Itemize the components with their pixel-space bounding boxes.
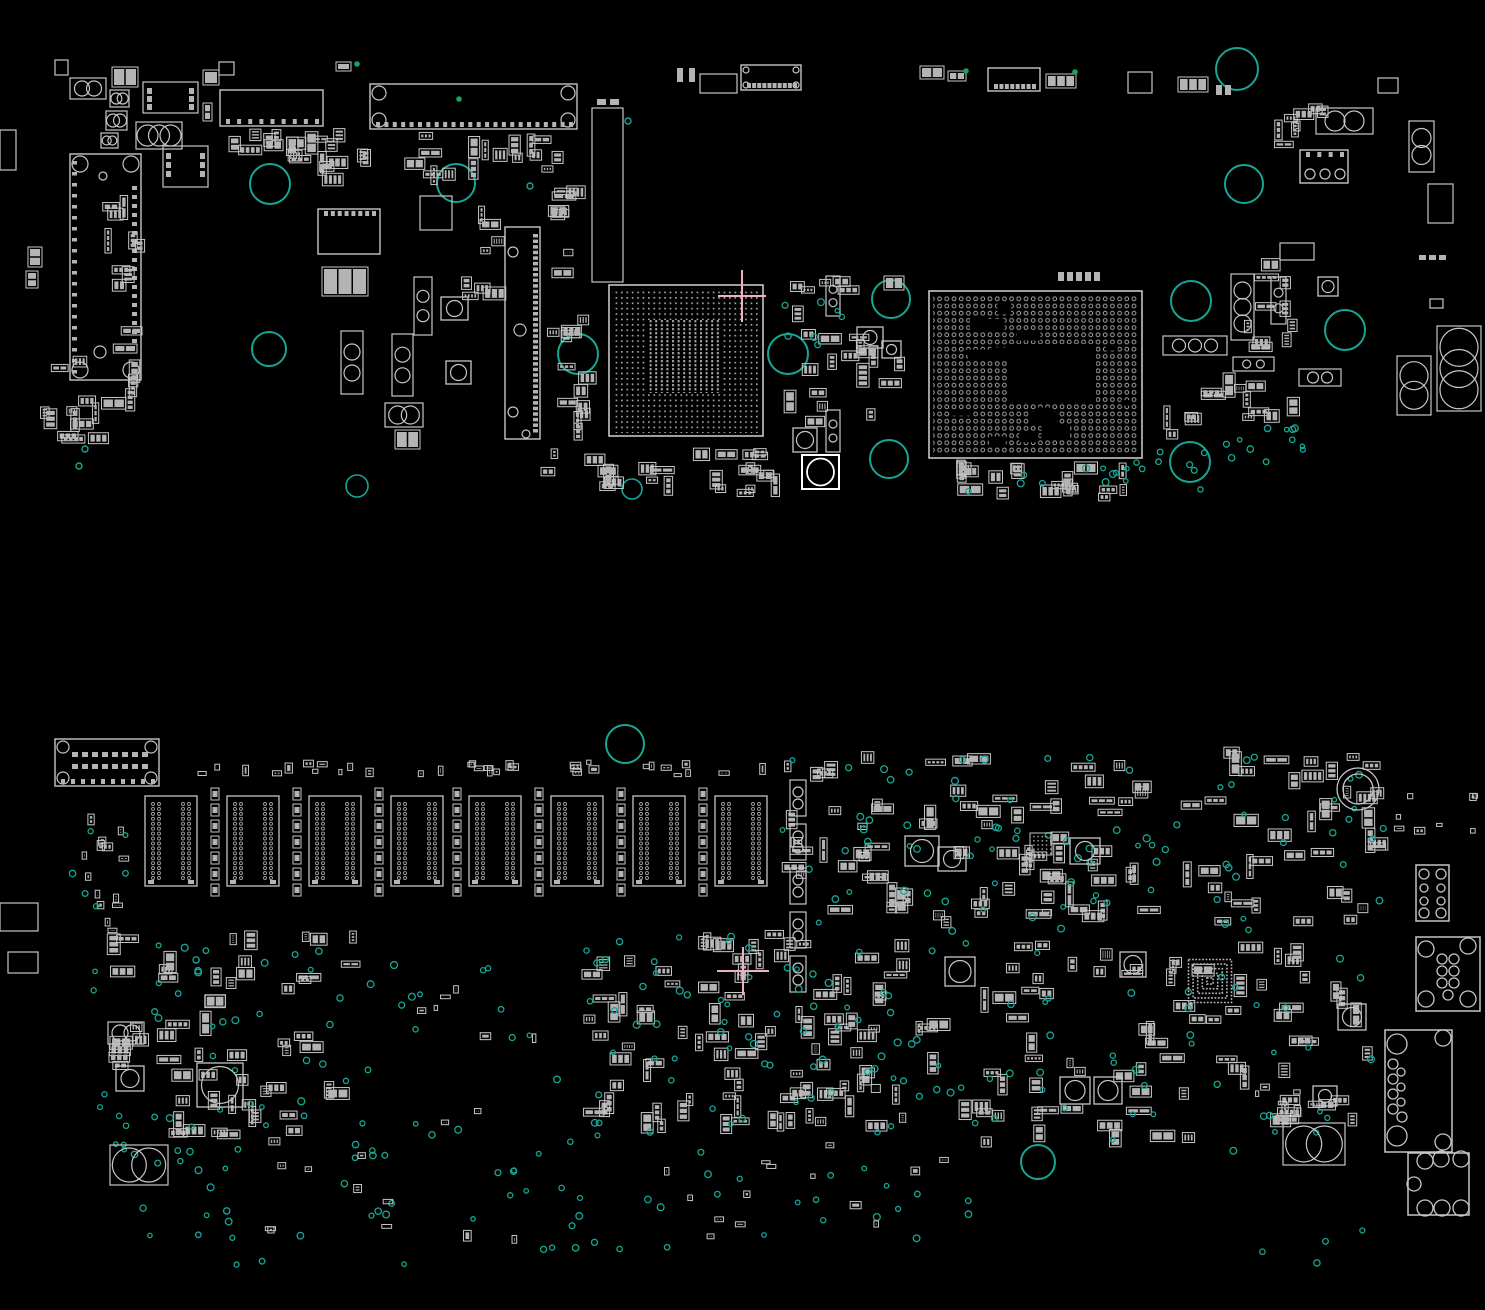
component-footprint[interactable] (481, 247, 490, 253)
component-footprint[interactable] (686, 770, 691, 777)
component-footprint[interactable] (1207, 1016, 1221, 1023)
component-footprint[interactable] (617, 788, 625, 896)
component-footprint[interactable] (678, 1101, 689, 1121)
component-footprint[interactable] (366, 768, 373, 776)
component-footprint[interactable] (243, 765, 249, 775)
component-footprint[interactable] (1283, 1123, 1345, 1165)
component-footprint[interactable] (686, 1093, 692, 1105)
component-footprint[interactable] (1302, 770, 1323, 782)
component-footprint[interactable] (226, 978, 236, 989)
component-footprint[interactable] (26, 271, 38, 288)
component-footprint[interactable] (1071, 763, 1095, 771)
component-footprint[interactable] (1101, 949, 1113, 960)
component-footprint[interactable] (948, 71, 966, 81)
qfn-component-footprint[interactable] (1060, 1077, 1090, 1104)
component-footprint[interactable] (290, 155, 311, 162)
boardview-stage[interactable] (0, 0, 1485, 1310)
component-footprint[interactable] (1167, 969, 1175, 985)
component-footprint[interactable] (494, 769, 500, 775)
component-footprint[interactable] (989, 471, 1003, 483)
component-footprint[interactable] (203, 103, 212, 121)
component-footprint[interactable] (934, 911, 945, 920)
component-footprint[interactable] (647, 477, 658, 483)
component-footprint[interactable] (195, 1048, 203, 1061)
component-footprint[interactable] (735, 1222, 745, 1227)
component-footprint[interactable] (1471, 829, 1476, 834)
component-footprint[interactable] (637, 1005, 653, 1012)
component-footprint[interactable] (1026, 910, 1051, 919)
component-footprint[interactable] (1167, 430, 1178, 439)
memory-chip-footprint[interactable] (391, 796, 443, 886)
component-footprint[interactable] (1362, 808, 1375, 828)
component-footprint[interactable] (479, 206, 485, 223)
component-footprint[interactable] (1331, 1096, 1349, 1105)
component-footprint[interactable] (1092, 875, 1116, 886)
component-footprint[interactable] (110, 90, 129, 107)
component-cluster[interactable] (318, 129, 371, 186)
component-footprint[interactable] (1344, 915, 1356, 924)
component-footprint[interactable] (801, 287, 814, 293)
component-footprint[interactable] (1054, 844, 1065, 863)
component-footprint[interactable] (282, 984, 294, 994)
component-footprint[interactable] (1254, 274, 1278, 281)
component-footprint[interactable] (1099, 493, 1110, 501)
component-footprint[interactable] (851, 1048, 862, 1058)
component-footprint[interactable] (101, 397, 125, 409)
component-footprint[interactable] (693, 448, 709, 460)
component-footprint[interactable] (1274, 1009, 1291, 1021)
component-footprint[interactable] (480, 1033, 491, 1040)
component-footprint[interactable] (1280, 301, 1290, 316)
component-footprint[interactable] (1285, 851, 1305, 860)
component-footprint[interactable] (1130, 1086, 1151, 1097)
component-footprint[interactable] (838, 861, 857, 872)
component-footprint[interactable] (664, 476, 672, 495)
component-footprint[interactable] (1022, 987, 1039, 994)
capacitor-footprint[interactable] (1337, 768, 1379, 810)
component-footprint[interactable] (1181, 801, 1201, 809)
component-footprint[interactable] (105, 918, 110, 926)
component-footprint[interactable] (797, 941, 811, 948)
component-footprint[interactable] (558, 398, 578, 406)
component-footprint[interactable] (453, 788, 461, 896)
component-footprint[interactable] (105, 228, 111, 253)
component-footprint[interactable] (547, 328, 558, 336)
component-footprint[interactable] (762, 1161, 770, 1164)
component-footprint[interactable] (707, 1234, 714, 1239)
component-footprint[interactable] (665, 981, 680, 987)
qfn-component-footprint[interactable] (905, 836, 939, 866)
component-footprint[interactable] (768, 1111, 778, 1128)
component-footprint[interactable] (203, 70, 219, 85)
component-footprint[interactable] (112, 67, 138, 87)
component-footprint[interactable] (815, 1117, 825, 1125)
component-footprint[interactable] (716, 450, 737, 459)
connector-footprint[interactable] (220, 90, 323, 126)
component-footprint[interactable] (785, 761, 791, 772)
component-footprint[interactable] (806, 1108, 813, 1123)
component-footprint[interactable] (678, 1026, 687, 1038)
component-footprint[interactable] (121, 327, 142, 335)
component-footprint[interactable] (1136, 1063, 1146, 1075)
component-footprint[interactable] (926, 759, 946, 765)
component-footprint[interactable] (1246, 381, 1265, 391)
component-footprint[interactable] (593, 995, 616, 1002)
component-footprint[interactable] (867, 409, 875, 420)
component-footprint[interactable] (1006, 963, 1019, 972)
component-footprint[interactable] (786, 811, 797, 829)
component-footprint[interactable] (1408, 794, 1413, 799)
component-footprint[interactable] (229, 1095, 236, 1113)
component-footprint[interactable] (532, 1034, 535, 1043)
component-footprint[interactable] (982, 821, 992, 829)
component-footprint[interactable] (51, 364, 68, 371)
component-footprint[interactable] (375, 788, 383, 896)
component-footprint[interactable] (1027, 1033, 1037, 1052)
component-footprint[interactable] (286, 1126, 302, 1135)
component-footprint[interactable] (733, 954, 751, 964)
component-footprint[interactable] (1255, 303, 1275, 310)
component-footprint[interactable] (1437, 326, 1481, 411)
component-footprint[interactable] (267, 1082, 287, 1093)
component-footprint[interactable] (920, 66, 944, 79)
component-footprint[interactable] (597, 99, 619, 105)
component-cluster[interactable] (541, 448, 779, 496)
component-footprint[interactable] (86, 873, 91, 880)
memory-chip-footprint[interactable] (145, 796, 197, 886)
component-footprint[interactable] (541, 467, 555, 475)
component-footprint[interactable] (998, 1074, 1007, 1094)
component-footprint[interactable] (1348, 1113, 1357, 1126)
component-footprint[interactable] (120, 196, 127, 220)
component-footprint[interactable] (438, 766, 443, 775)
component-footprint[interactable] (643, 764, 649, 768)
component-footprint[interactable] (1292, 123, 1299, 137)
component-footprint[interactable] (8, 952, 38, 973)
component-footprint[interactable] (696, 1034, 703, 1050)
component-footprint[interactable] (1067, 1058, 1073, 1067)
component-footprint[interactable] (1199, 866, 1220, 876)
component-footprint[interactable] (584, 1015, 595, 1023)
component-footprint[interactable] (786, 1112, 795, 1128)
component-footprint[interactable] (269, 1138, 280, 1145)
component-footprint[interactable] (1261, 1084, 1270, 1090)
component-footprint[interactable] (1261, 259, 1280, 271)
component-footprint[interactable] (710, 470, 722, 489)
component-footprint[interactable] (336, 62, 351, 71)
component-footprint[interactable] (339, 769, 342, 774)
component-footprint[interactable] (88, 433, 108, 444)
connector-footprint[interactable] (318, 209, 380, 254)
component-cluster[interactable] (101, 196, 144, 411)
component-footprint[interactable] (0, 130, 16, 170)
component-footprint[interactable] (552, 268, 573, 278)
bga-chip-footprint[interactable] (929, 291, 1142, 458)
component-footprint[interactable] (574, 385, 588, 398)
qfn-component-footprint[interactable] (1094, 1077, 1122, 1104)
qfn-component-footprint[interactable] (1318, 277, 1338, 296)
component-footprint[interactable] (176, 1096, 189, 1106)
component-footprint[interactable] (723, 1093, 735, 1099)
board-bottom-view[interactable] (0, 725, 1480, 1267)
component-footprint[interactable] (801, 1017, 814, 1039)
component-footprint[interactable] (593, 1031, 608, 1040)
component-footprint[interactable] (715, 1217, 724, 1222)
component-footprint[interactable] (573, 769, 582, 775)
component-footprint[interactable] (72, 752, 148, 757)
component-footprint[interactable] (348, 763, 353, 770)
component-footprint[interactable] (674, 774, 681, 777)
component-footprint[interactable] (1015, 943, 1033, 951)
component-footprint[interactable] (112, 279, 126, 291)
component-footprint[interactable] (1231, 900, 1253, 907)
component-footprint[interactable] (434, 1005, 437, 1010)
component-footprint[interactable] (305, 132, 318, 154)
component-footprint[interactable] (1308, 811, 1316, 832)
component-footprint[interactable] (512, 1236, 517, 1244)
component-footprint[interactable] (884, 276, 904, 290)
component-footprint[interactable] (857, 363, 869, 387)
component-footprint[interactable] (1085, 775, 1103, 788)
component-footprint[interactable] (976, 805, 1000, 817)
component-footprint[interactable] (1428, 184, 1453, 223)
component-footprint[interactable] (1249, 408, 1269, 416)
memory-chip-footprint[interactable] (469, 796, 521, 886)
component-footprint[interactable] (108, 928, 117, 932)
component-footprint[interactable] (941, 917, 950, 928)
component-footprint[interactable] (739, 1014, 754, 1027)
component-footprint[interactable] (418, 771, 423, 777)
component-footprint[interactable] (1358, 904, 1368, 913)
component-cluster[interactable] (462, 206, 506, 300)
component-footprint[interactable] (1279, 1063, 1290, 1077)
component-footprint[interactable] (1234, 384, 1245, 392)
component-footprint[interactable] (118, 827, 123, 835)
component-footprint[interactable] (777, 1113, 784, 1131)
component-footprint[interactable] (879, 379, 901, 388)
component-footprint[interactable] (649, 762, 654, 770)
component-footprint[interactable] (893, 1085, 900, 1104)
component-footprint[interactable] (1327, 887, 1343, 899)
component-cluster[interactable] (1394, 793, 1477, 834)
component-footprint[interactable] (1094, 967, 1105, 977)
component-footprint[interactable] (405, 158, 425, 169)
component-footprint[interactable] (1225, 892, 1231, 902)
component-footprint[interactable] (997, 847, 1019, 859)
component-cluster[interactable] (665, 1143, 949, 1239)
component-footprint[interactable] (1025, 1055, 1042, 1061)
qfn-component-footprint[interactable] (441, 297, 468, 320)
component-footprint[interactable] (1288, 319, 1297, 331)
component-footprint[interactable] (1098, 809, 1122, 815)
component-footprint[interactable] (0, 903, 38, 931)
component-footprint[interactable] (506, 761, 513, 770)
component-footprint[interactable] (597, 957, 610, 970)
component-footprint[interactable] (1275, 141, 1294, 147)
component-footprint[interactable] (322, 267, 368, 296)
component-footprint[interactable] (268, 1227, 274, 1233)
component-footprint[interactable] (300, 1042, 323, 1053)
memory-chip-footprint[interactable] (551, 796, 603, 886)
component-footprint[interactable] (215, 764, 220, 770)
component-footprint[interactable] (825, 1014, 844, 1025)
component-footprint[interactable] (688, 1195, 693, 1200)
component-footprint[interactable] (791, 282, 805, 292)
component-footprint[interactable] (1233, 357, 1274, 371)
component-footprint[interactable] (699, 982, 719, 993)
component-footprint[interactable] (211, 788, 219, 896)
component-cluster[interactable] (916, 941, 1372, 1147)
component-footprint[interactable] (1326, 762, 1337, 779)
component-footprint[interactable] (981, 1137, 991, 1147)
component-footprint[interactable] (1034, 1125, 1045, 1142)
component-footprint[interactable] (1208, 883, 1221, 893)
component-footprint[interactable] (1046, 74, 1076, 88)
component-footprint[interactable] (844, 977, 851, 994)
component-footprint[interactable] (294, 1032, 312, 1041)
component-footprint[interactable] (245, 931, 258, 950)
component-footprint[interactable] (725, 1068, 740, 1079)
component-footprint[interactable] (867, 871, 888, 883)
component-footprint[interactable] (1100, 486, 1117, 493)
component-footprint[interactable] (55, 60, 68, 75)
component-footprint[interactable] (564, 249, 573, 255)
component-footprint[interactable] (744, 1191, 750, 1197)
component-footprint[interactable] (454, 986, 459, 993)
component-footprint[interactable] (103, 203, 119, 211)
component-footprint[interactable] (70, 78, 106, 99)
component-footprint[interactable] (302, 932, 309, 941)
component-footprint[interactable] (981, 988, 988, 1013)
component-cluster[interactable] (1244, 259, 1297, 352)
component-footprint[interactable] (1394, 826, 1403, 831)
component-footprint[interactable] (587, 760, 591, 764)
component-footprint[interactable] (1264, 756, 1289, 764)
component-footprint[interactable] (1150, 1130, 1174, 1141)
component-footprint[interactable] (1304, 757, 1318, 767)
component-footprint[interactable] (661, 765, 671, 770)
component-footprint[interactable] (1051, 799, 1062, 813)
connector-footprint[interactable] (55, 739, 159, 786)
component-footprint[interactable] (280, 1111, 297, 1119)
component-footprint[interactable] (462, 277, 472, 289)
component-footprint[interactable] (700, 74, 737, 93)
connector-footprint[interactable] (1300, 150, 1348, 183)
component-footprint[interactable] (1089, 797, 1114, 804)
component-footprint[interactable] (542, 166, 553, 172)
component-footprint[interactable] (113, 894, 118, 902)
component-footprint[interactable] (735, 1049, 758, 1059)
component-footprint[interactable] (189, 88, 194, 110)
component-footprint[interactable] (1311, 848, 1333, 856)
component-footprint[interactable] (1007, 1014, 1029, 1022)
component-footprint[interactable] (230, 934, 236, 945)
component-cluster[interactable] (82, 814, 129, 933)
component-footprint[interactable] (775, 950, 789, 962)
component-footprint[interactable] (493, 148, 507, 161)
component-footprint[interactable] (1347, 754, 1359, 761)
component-footprint[interactable] (840, 1081, 848, 1091)
connector-footprint[interactable] (1416, 865, 1449, 921)
component-footprint[interactable] (109, 1053, 130, 1063)
component-cluster[interactable] (405, 132, 488, 184)
component-footprint[interactable] (385, 403, 423, 427)
memory-chip-footprint[interactable] (309, 796, 361, 886)
component-footprint[interactable] (79, 396, 96, 406)
component-footprint[interactable] (725, 992, 744, 999)
component-footprint[interactable] (28, 247, 42, 267)
component-footprint[interactable] (1182, 1133, 1194, 1143)
component-footprint[interactable] (119, 856, 129, 861)
component-footprint[interactable] (358, 1153, 365, 1159)
component-footprint[interactable] (1033, 974, 1043, 984)
component-footprint[interactable] (820, 279, 831, 286)
component-footprint[interactable] (826, 1143, 834, 1148)
component-cluster[interactable] (229, 129, 327, 163)
component-cluster[interactable] (107, 931, 360, 1145)
component-footprint[interactable] (1437, 823, 1442, 826)
component-footprint[interactable] (509, 135, 520, 155)
component-footprint[interactable] (1216, 85, 1231, 95)
component-footprint[interactable] (1138, 906, 1161, 913)
component-footprint[interactable] (341, 331, 363, 394)
component-cluster[interactable] (418, 986, 536, 1125)
component-footprint[interactable] (1294, 1090, 1300, 1094)
component-footprint[interactable] (304, 760, 314, 767)
component-footprint[interactable] (272, 771, 281, 776)
component-footprint[interactable] (1192, 964, 1214, 976)
component-footprint[interactable] (552, 151, 563, 163)
component-footprint[interactable] (1256, 1091, 1259, 1097)
component-footprint[interactable] (334, 129, 345, 142)
component-footprint[interactable] (1231, 274, 1254, 340)
component-footprint[interactable] (311, 933, 328, 945)
connector-footprint[interactable] (1385, 1030, 1452, 1152)
component-footprint[interactable] (200, 1011, 211, 1035)
component-footprint[interactable] (1038, 1107, 1059, 1114)
component-footprint[interactable] (113, 903, 123, 907)
component-footprint[interactable] (1299, 369, 1341, 386)
component-footprint[interactable] (172, 1069, 193, 1081)
component-footprint[interactable] (592, 108, 623, 282)
component-footprint[interactable] (790, 956, 806, 992)
component-footprint[interactable] (469, 137, 480, 158)
component-footprint[interactable] (714, 1048, 728, 1060)
component-footprint[interactable] (354, 1184, 362, 1192)
component-footprint[interactable] (760, 763, 766, 774)
component-footprint[interactable] (765, 930, 783, 938)
component-footprint[interactable] (819, 334, 842, 344)
component-cluster[interactable] (547, 186, 588, 342)
memory-chip-footprint[interactable] (633, 796, 685, 886)
component-footprint[interactable] (1179, 1088, 1188, 1099)
component-footprint[interactable] (940, 1157, 949, 1162)
component-footprint[interactable] (1409, 121, 1434, 172)
component-cluster[interactable] (198, 760, 765, 776)
component-footprint[interactable] (278, 1163, 286, 1169)
component-footprint[interactable] (1190, 1015, 1206, 1024)
connector-footprint[interactable] (988, 68, 1040, 91)
component-footprint[interactable] (492, 237, 504, 246)
component-footprint[interactable] (1234, 814, 1258, 826)
component-footprint[interactable] (646, 1059, 664, 1068)
component-footprint[interactable] (200, 153, 205, 177)
component-footprint[interactable] (1205, 797, 1226, 804)
component-footprint[interactable] (108, 208, 123, 220)
bga-grid-footprint[interactable] (1189, 960, 1232, 1003)
memory-chip-footprint[interactable] (715, 796, 767, 886)
connector-footprint[interactable] (505, 227, 540, 439)
